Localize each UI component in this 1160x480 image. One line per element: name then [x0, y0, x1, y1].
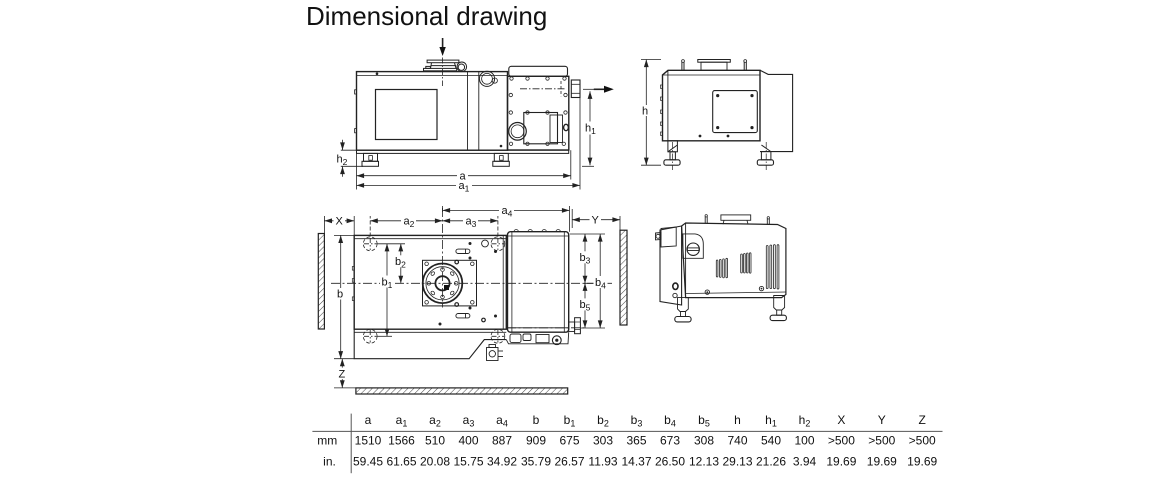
svg-text:34.92: 34.92	[487, 455, 517, 469]
svg-text:365: 365	[626, 434, 646, 448]
svg-text:h: h	[642, 106, 648, 118]
svg-text:3.94: 3.94	[793, 455, 817, 469]
svg-text:b: b	[337, 289, 343, 301]
svg-text:540: 540	[761, 434, 781, 448]
svg-text:26.50: 26.50	[655, 455, 685, 469]
svg-text:19.69: 19.69	[826, 455, 856, 469]
svg-text:Dimensional drawing: Dimensional drawing	[306, 1, 547, 31]
svg-text:Z: Z	[339, 368, 346, 380]
svg-text:14.37: 14.37	[621, 455, 651, 469]
svg-text:Y: Y	[592, 215, 600, 227]
svg-text:510: 510	[425, 434, 445, 448]
svg-text:a: a	[365, 413, 372, 427]
svg-text:1566: 1566	[388, 434, 415, 448]
svg-text:12.13: 12.13	[689, 455, 719, 469]
svg-text:675: 675	[559, 434, 579, 448]
svg-text:a3: a3	[463, 413, 475, 429]
svg-text:>500: >500	[868, 434, 895, 448]
svg-text:a1: a1	[396, 413, 408, 429]
svg-text:11.93: 11.93	[588, 455, 617, 469]
svg-text:h2: h2	[799, 413, 811, 429]
svg-text:673: 673	[660, 434, 680, 448]
svg-text:mm: mm	[317, 434, 337, 448]
svg-text:b1: b1	[564, 413, 576, 429]
svg-text:59.45: 59.45	[353, 455, 383, 469]
svg-text:b5: b5	[698, 413, 710, 429]
svg-text:26.57: 26.57	[554, 455, 584, 469]
svg-text:h1: h1	[765, 413, 777, 429]
svg-text:308: 308	[694, 434, 714, 448]
svg-text:1510: 1510	[355, 434, 382, 448]
svg-text:35.79: 35.79	[521, 455, 551, 469]
svg-text:>500: >500	[909, 434, 936, 448]
svg-text:29.13: 29.13	[722, 455, 752, 469]
svg-text:400: 400	[458, 434, 478, 448]
svg-text:a4: a4	[496, 413, 508, 429]
svg-text:b2: b2	[597, 413, 609, 429]
svg-text:b4: b4	[664, 413, 676, 429]
svg-text:a2: a2	[429, 413, 441, 429]
svg-text:61.65: 61.65	[386, 455, 416, 469]
svg-text:h2: h2	[337, 154, 348, 168]
svg-text:100: 100	[794, 434, 814, 448]
svg-text:b: b	[533, 413, 540, 427]
svg-text:15.75: 15.75	[453, 455, 483, 469]
svg-text:in.: in.	[323, 455, 336, 469]
svg-text:20.08: 20.08	[420, 455, 450, 469]
svg-text:19.69: 19.69	[907, 455, 937, 469]
svg-text:887: 887	[492, 434, 512, 448]
svg-text:Y: Y	[878, 413, 886, 427]
svg-text:X: X	[837, 413, 845, 427]
svg-text:h: h	[734, 413, 741, 427]
svg-text:Z: Z	[919, 413, 926, 427]
svg-text:909: 909	[526, 434, 546, 448]
svg-text:19.69: 19.69	[867, 455, 897, 469]
svg-text:X: X	[336, 216, 344, 228]
svg-text:21.26: 21.26	[756, 455, 786, 469]
svg-text:b3: b3	[631, 413, 643, 429]
svg-text:740: 740	[727, 434, 747, 448]
svg-text:>500: >500	[828, 434, 855, 448]
svg-text:303: 303	[593, 434, 613, 448]
